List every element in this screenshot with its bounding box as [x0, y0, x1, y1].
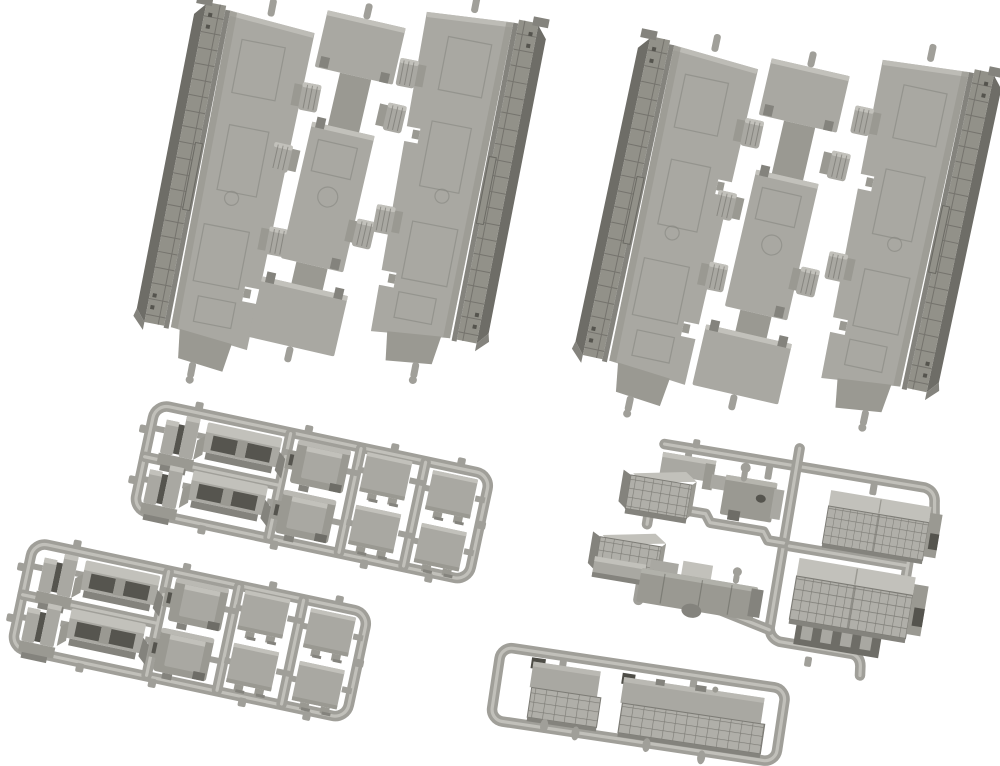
equipment-sprue — [577, 417, 950, 685]
pin-bracket — [705, 458, 788, 528]
detail-sprue-upper — [121, 391, 499, 592]
model-kit-parts-photo — [0, 0, 1000, 766]
floor-set-left — [123, 0, 554, 398]
detail-sprue-lower — [0, 529, 377, 730]
louver-panel — [523, 657, 606, 731]
tank-block — [635, 552, 767, 629]
louver-sprue — [489, 647, 787, 766]
floor-set-right — [560, 18, 1000, 446]
product-photo-canvas — [0, 0, 1000, 766]
